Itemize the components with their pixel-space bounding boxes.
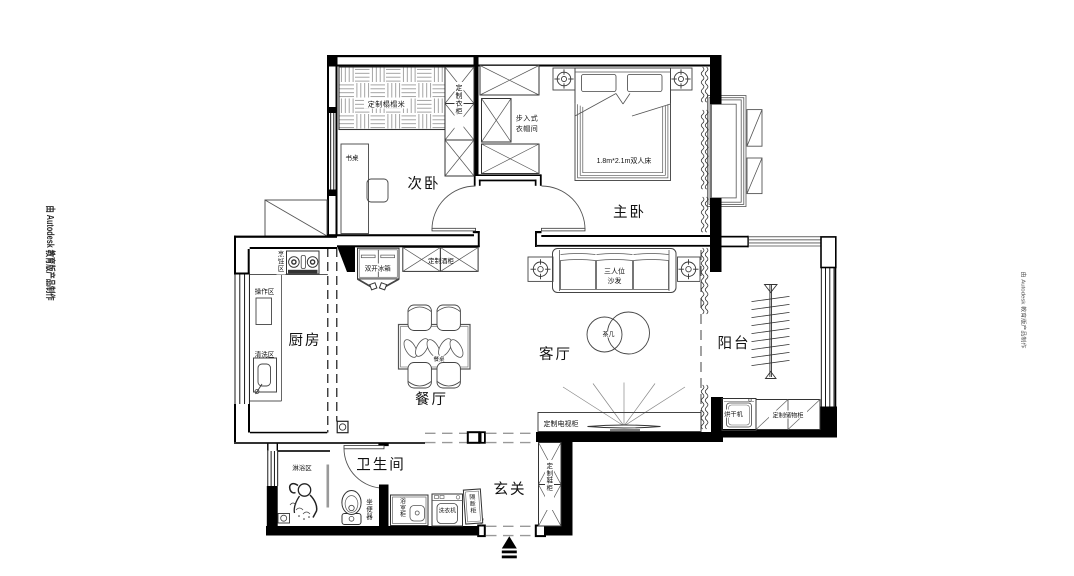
svg-text:书桌: 书桌 [346, 153, 360, 162]
svg-text:定制榻榻米: 定制榻榻米 [368, 100, 406, 109]
svg-text:定制储物柜: 定制储物柜 [773, 411, 804, 419]
svg-text:便: 便 [366, 504, 373, 513]
svg-text:茶几: 茶几 [602, 331, 614, 339]
svg-text:餐桌: 餐桌 [433, 355, 445, 363]
svg-text:衣帽间: 衣帽间 [516, 124, 539, 133]
svg-text:次卧: 次卧 [408, 176, 441, 193]
svg-text:衣: 衣 [456, 99, 463, 108]
svg-text:烘干机: 烘干机 [724, 411, 743, 419]
svg-text:器: 器 [366, 513, 373, 521]
svg-text:柜: 柜 [456, 106, 463, 115]
svg-text:定: 定 [546, 461, 553, 470]
svg-text:三人位: 三人位 [604, 267, 625, 276]
svg-text:由 Autodesk 教育版产品制作: 由 Autodesk 教育版产品制作 [1020, 272, 1028, 349]
svg-text:主卧: 主卧 [613, 204, 646, 221]
svg-text:玄关: 玄关 [494, 481, 527, 498]
svg-text:客厅: 客厅 [539, 346, 572, 363]
svg-text:坐: 坐 [366, 497, 373, 506]
svg-text:阳台: 阳台 [718, 335, 751, 352]
svg-text:由 Autodesk 教育版产品制作: 由 Autodesk 教育版产品制作 [44, 206, 57, 301]
svg-text:区: 区 [278, 265, 285, 273]
svg-text:室: 室 [400, 504, 406, 512]
svg-text:厨房: 厨房 [289, 332, 322, 349]
svg-text:1.8m*2.1m双人床: 1.8m*2.1m双人床 [597, 156, 652, 165]
svg-text:定: 定 [456, 83, 463, 92]
svg-text:柜: 柜 [400, 511, 406, 519]
svg-text:洗衣机: 洗衣机 [439, 507, 457, 515]
svg-text:鞋: 鞋 [546, 476, 553, 485]
svg-text:沙发: 沙发 [608, 276, 622, 285]
svg-text:定制酒柜: 定制酒柜 [428, 256, 455, 265]
svg-text:卫生间: 卫生间 [356, 457, 406, 474]
svg-text:双开冰箱: 双开冰箱 [365, 263, 392, 272]
svg-text:浴: 浴 [400, 497, 406, 505]
svg-text:柜: 柜 [546, 483, 553, 492]
svg-text:淋浴区: 淋浴区 [292, 463, 312, 472]
svg-text:定制电视柜: 定制电视柜 [544, 419, 579, 428]
svg-text:餐厅: 餐厅 [415, 391, 448, 408]
svg-text:步入式: 步入式 [516, 114, 539, 123]
svg-text:操作区: 操作区 [255, 287, 275, 296]
svg-text:制: 制 [456, 91, 463, 100]
svg-text:制: 制 [546, 468, 553, 477]
svg-text:饪: 饪 [278, 256, 285, 265]
svg-text:烹: 烹 [278, 249, 285, 258]
svg-text:清洗区: 清洗区 [255, 350, 275, 359]
